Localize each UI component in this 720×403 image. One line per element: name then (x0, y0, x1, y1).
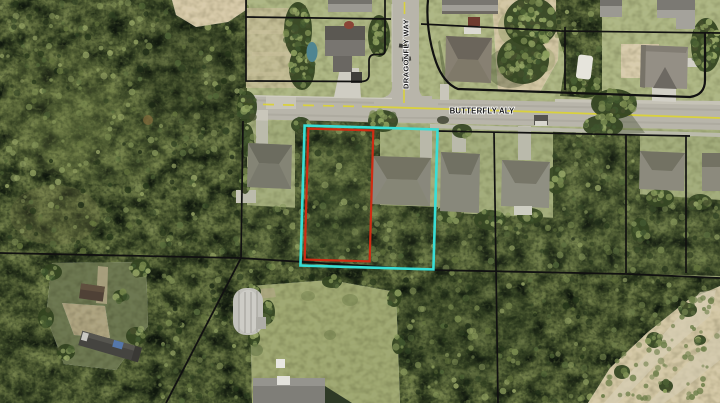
svg-text:DRAGONFLY WAY: DRAGONFLY WAY (402, 19, 411, 89)
svg-text:BUTTERFLY ALY: BUTTERFLY ALY (450, 107, 515, 116)
